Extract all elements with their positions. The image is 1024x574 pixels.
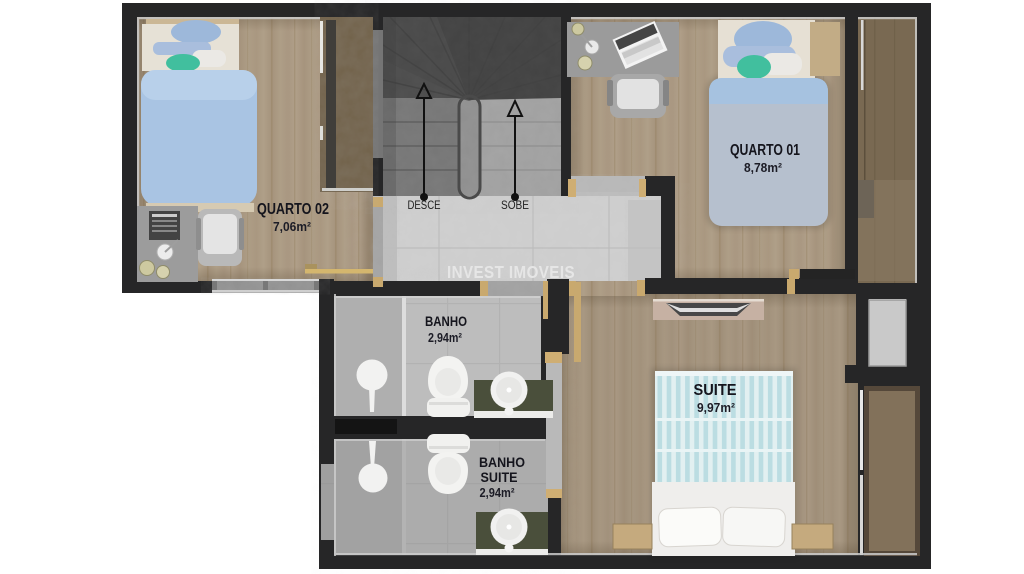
svg-text:8,78m²: 8,78m² [744, 160, 783, 175]
svg-text:7,06m²: 7,06m² [273, 219, 312, 234]
svg-text:BANHO: BANHO [479, 455, 525, 470]
svg-text:9,97m²: 9,97m² [697, 400, 736, 415]
svg-text:QUARTO 01: QUARTO 01 [730, 142, 800, 159]
svg-text:2,94m²: 2,94m² [428, 331, 462, 345]
svg-text:DESCE: DESCE [408, 198, 441, 212]
svg-text:SUITE: SUITE [694, 382, 737, 399]
svg-text:QUARTO 02: QUARTO 02 [257, 201, 329, 218]
svg-text:BANHO: BANHO [425, 314, 467, 329]
svg-text:2,94m²: 2,94m² [480, 486, 515, 500]
svg-text:SOBE: SOBE [501, 198, 529, 212]
svg-text:SUITE: SUITE [481, 470, 518, 485]
svg-text:INVEST IMOVEIS: INVEST IMOVEIS [447, 262, 575, 282]
